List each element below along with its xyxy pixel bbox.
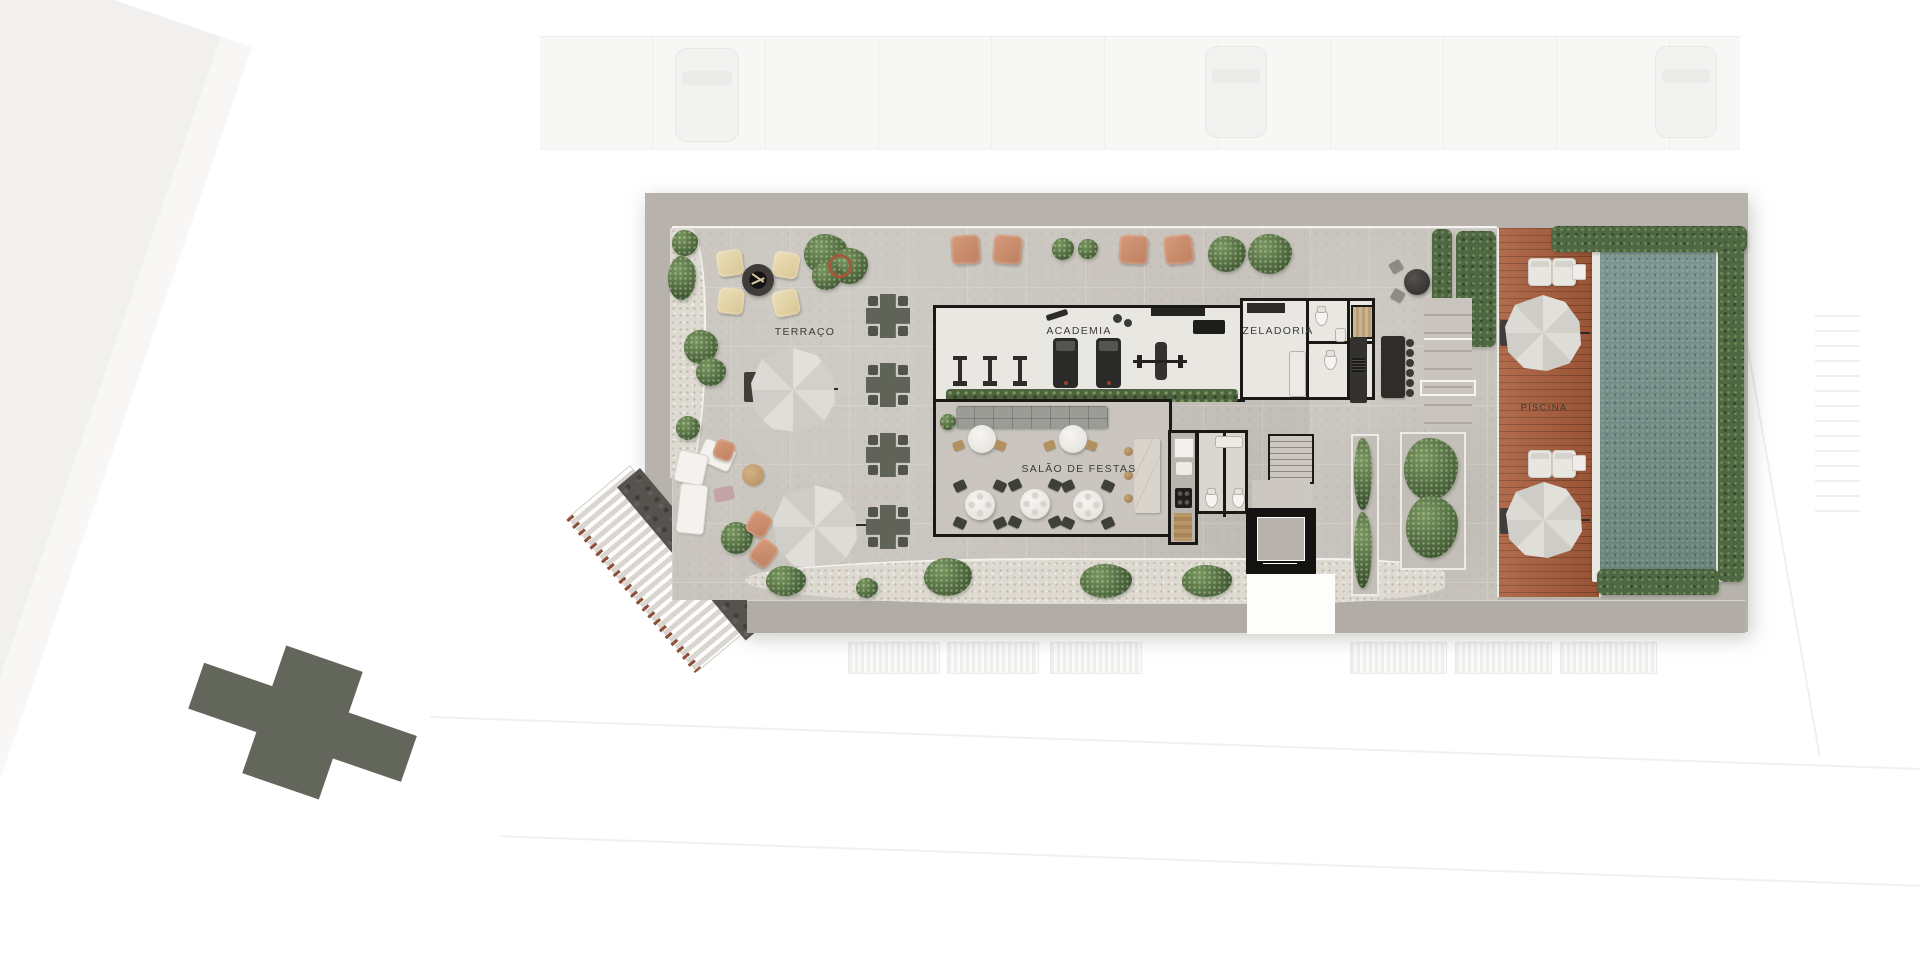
parked-car-icon: [1655, 46, 1717, 138]
kitchen-sink: [1175, 461, 1193, 476]
side-table: [1572, 455, 1586, 471]
terrace-pouf: [1118, 234, 1148, 264]
garage-stall: [1560, 642, 1657, 674]
gourmet-stool: [1406, 349, 1414, 357]
crosswalk: [174, 622, 431, 823]
wall-equipment: [1046, 309, 1069, 322]
cross-table: [866, 294, 910, 338]
stair-landing: [1252, 480, 1310, 508]
side-table: [1572, 264, 1586, 280]
kettlebell: [1124, 319, 1132, 327]
terrace-pouf: [950, 234, 981, 265]
label-piscina: PISCINA: [1520, 403, 1567, 414]
treadmill: [1096, 338, 1121, 388]
cross-table: [866, 505, 910, 549]
cross-table: [866, 363, 910, 407]
garage-stall: [848, 642, 940, 674]
kitchen-island: [1134, 439, 1160, 513]
bench-outline: [1420, 380, 1476, 396]
terrace-pouf: [992, 234, 1023, 265]
fire-pit-pouf: [715, 248, 744, 277]
toilet: [1232, 491, 1245, 508]
bistro-chair: [1043, 439, 1056, 451]
elevator-car: [1257, 517, 1305, 561]
treadmill: [1053, 338, 1078, 388]
exercise-bike: [1013, 356, 1027, 386]
toilet: [1205, 491, 1218, 508]
bistro-table: [1059, 425, 1087, 453]
patio-steps: [1424, 298, 1472, 426]
island-stool: [1124, 494, 1133, 503]
gourmet-stool: [1406, 339, 1414, 347]
label-salao-de-festas: SALÃO DE FESTAS: [1022, 463, 1137, 475]
terrace-boundary-line: [672, 226, 1497, 228]
pool-hedge-right: [1718, 242, 1744, 582]
garage-stall: [1350, 642, 1447, 674]
bathroom-sink: [1335, 328, 1346, 342]
void-below-slab: [1247, 574, 1335, 634]
fire-pit: [742, 264, 774, 296]
grill: [1352, 358, 1365, 372]
round-pouf: [742, 464, 764, 486]
laundry-counter: [1289, 351, 1306, 397]
parked-car-icon: [1205, 46, 1267, 138]
gourmet-table: [1381, 336, 1405, 398]
street-left: [0, 0, 252, 960]
barbell-plate: [1137, 355, 1142, 368]
sun-lounger: [1528, 450, 1552, 478]
dining-table: [965, 490, 995, 520]
fire-pit-pouf: [771, 288, 802, 319]
wood-cabinet: [1174, 513, 1192, 541]
elevator-shaft: [1246, 508, 1316, 574]
stove: [1175, 488, 1192, 508]
garage-stall: [1455, 642, 1552, 674]
exercise-bike: [953, 356, 967, 386]
context-line: [500, 835, 1919, 887]
gourmet-stool: [1406, 369, 1414, 377]
indoor-plant: [940, 414, 956, 430]
floorplan-canvas: TERRAÇO ACADEMIA ZELADORIA SALÃO DE FEST…: [0, 0, 1920, 960]
bistro-chair: [1085, 439, 1098, 451]
gourmet-stool: [1406, 379, 1414, 387]
island-stool: [1124, 447, 1133, 456]
garden-bed: [1400, 432, 1466, 570]
pool-coping: [1592, 235, 1724, 582]
staircase: [1268, 434, 1314, 484]
elevator-door: [1263, 563, 1297, 568]
garage-stall: [1050, 642, 1142, 674]
dining-table: [1073, 490, 1103, 520]
toilet: [1315, 309, 1328, 326]
terrace-pouf: [1163, 234, 1195, 266]
wc-vanity: [1215, 436, 1243, 448]
bistro-chair: [952, 439, 965, 451]
terracotta-pot: [828, 254, 852, 278]
swimming-pool: [1600, 243, 1716, 574]
wc-block: [1196, 430, 1248, 514]
parked-car-icon: [675, 48, 739, 142]
weight-rack: [1193, 320, 1225, 334]
barbell-plate: [1178, 355, 1183, 368]
fire-pit-pouf: [717, 287, 746, 316]
pool-hedge-bottom: [1597, 569, 1719, 595]
refrigerator: [1174, 438, 1194, 458]
exercise-bike: [983, 356, 997, 386]
bistro-table: [968, 425, 996, 453]
label-terraco: TERRAÇO: [775, 326, 835, 338]
gym-console: [1151, 308, 1205, 316]
exterior-stairs-ghost: [1815, 315, 1860, 515]
toilet: [1324, 353, 1337, 370]
cafe-table: [1404, 269, 1430, 295]
gourmet-stool: [1406, 359, 1414, 367]
shower: [1351, 305, 1374, 339]
kitchen: [1168, 430, 1198, 545]
cross-table: [866, 433, 910, 477]
fire-pit-pouf: [771, 250, 801, 280]
patio-rail-line: [1424, 338, 1472, 340]
south-slab-strip: [747, 600, 1745, 633]
dining-table: [1020, 489, 1050, 519]
garage-stall: [947, 642, 1039, 674]
kettlebell: [1113, 314, 1122, 323]
sun-lounger: [1528, 258, 1552, 286]
label-academia: ACADEMIA: [1046, 325, 1111, 337]
gourmet-stool: [1406, 389, 1414, 397]
outdoor-chaise: [675, 483, 708, 536]
vertical-planter: [1351, 434, 1379, 596]
storage-cabinet: [1247, 303, 1285, 313]
context-line: [430, 716, 1919, 770]
label-zeladoria: ZELADORIA: [1242, 325, 1313, 337]
bistro-chair: [994, 439, 1007, 451]
gym-room: [933, 305, 1245, 402]
